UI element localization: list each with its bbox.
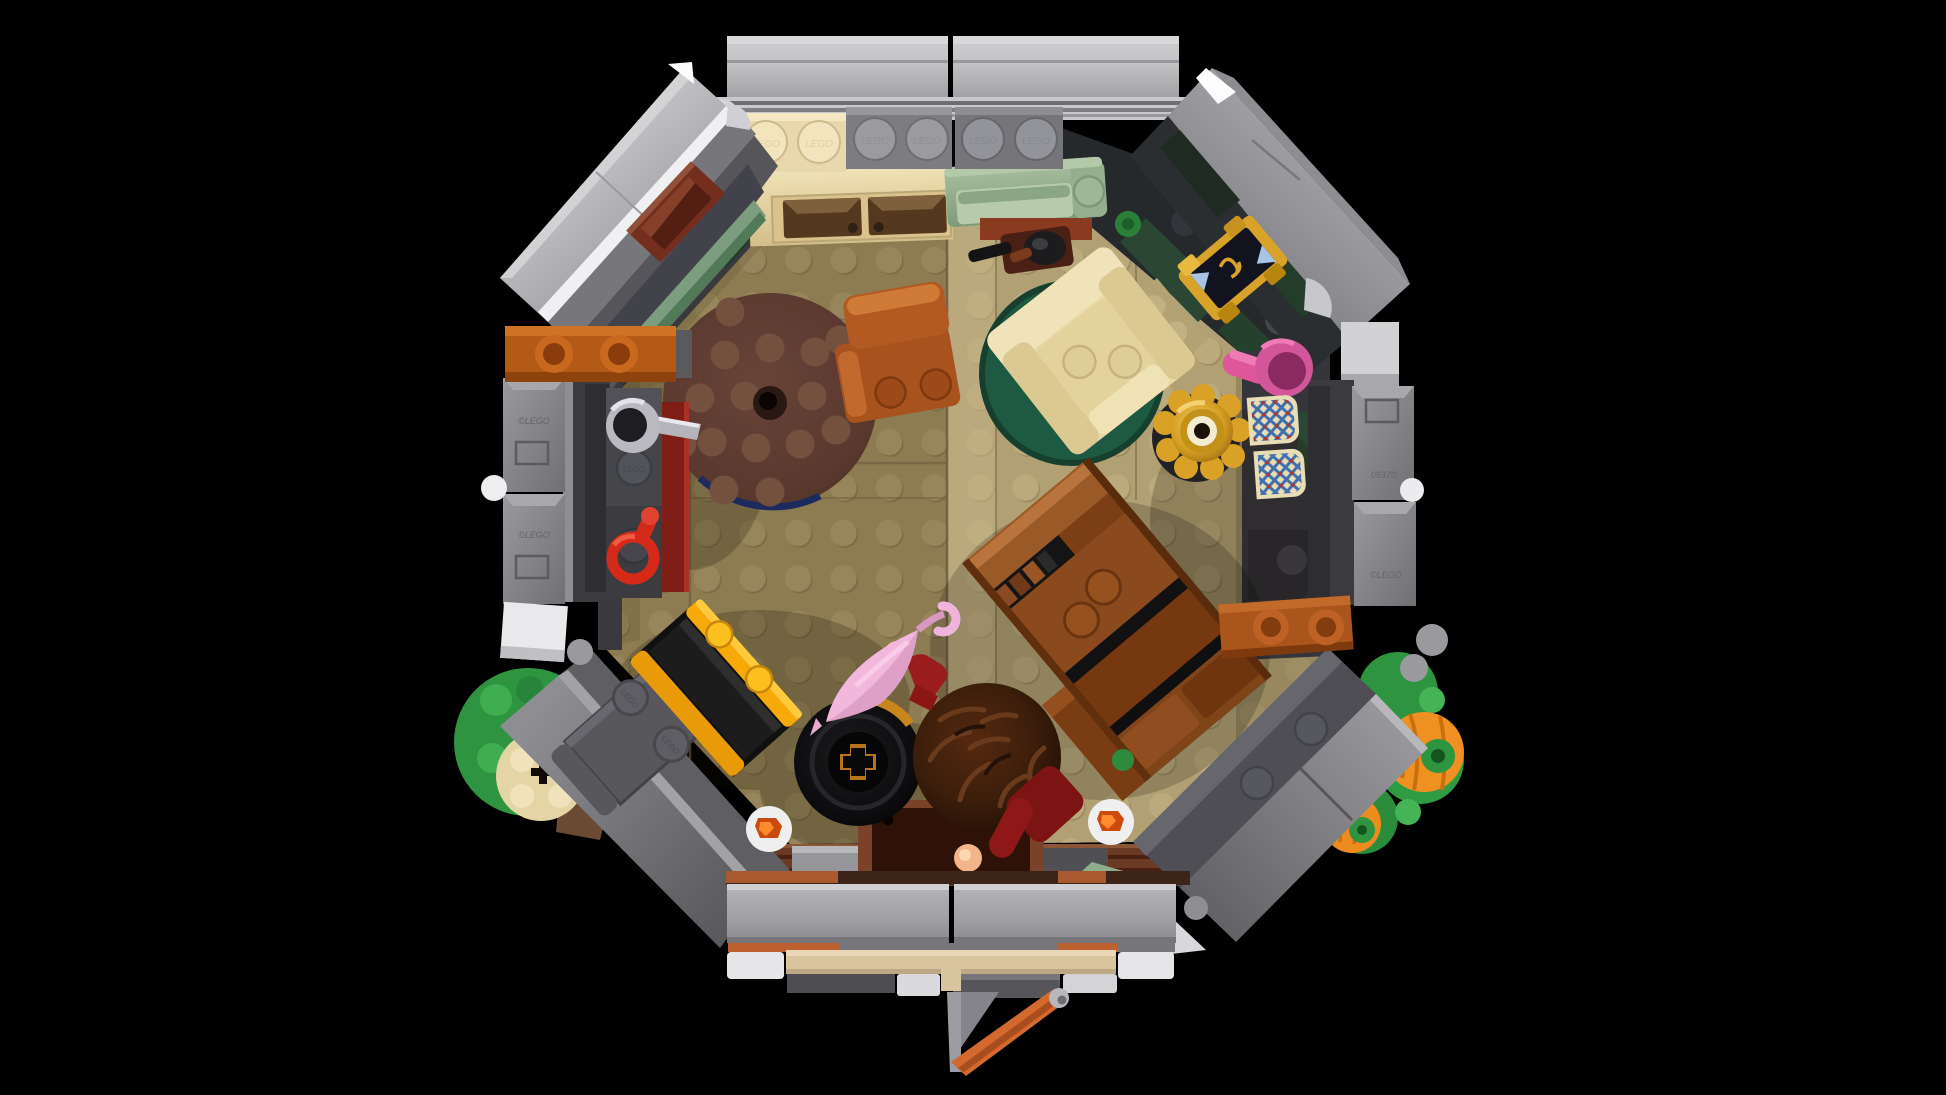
svg-text:LEGO: LEGO [913,136,941,147]
svg-text:LEGO: LEGO [861,136,889,147]
svg-text:LEGO: LEGO [623,465,645,474]
svg-text:©LEGO: ©LEGO [518,416,550,426]
svg-text:©LEGO: ©LEGO [518,530,550,540]
svg-text:©LEGO: ©LEGO [1370,570,1402,580]
svg-text:LEGO: LEGO [969,136,997,147]
svg-text:LEGO: LEGO [805,139,833,150]
svg-text:LEGO: LEGO [1022,136,1050,147]
svg-text:0937©: 0937© [1371,470,1398,480]
